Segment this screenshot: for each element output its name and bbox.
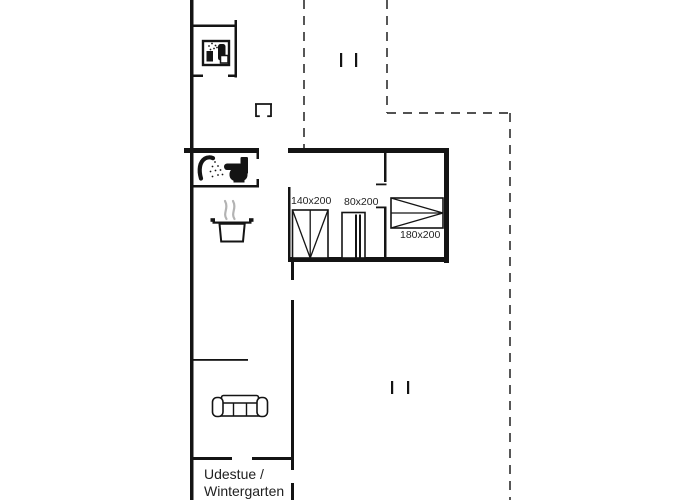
shower-arm <box>200 157 213 178</box>
fireplace-icon <box>255 104 272 117</box>
wall-segment <box>384 208 387 257</box>
wall-segment <box>444 148 449 263</box>
wall-segment <box>288 148 449 153</box>
toilet-bowl <box>230 168 248 181</box>
shower-spray-dots <box>210 161 224 177</box>
bed-size-label-180x200: 180x200 <box>400 230 440 241</box>
wall-segment <box>228 75 237 78</box>
floor-plan-linework <box>0 0 700 500</box>
sofa-icon <box>213 396 268 417</box>
floor-plan: 140x200 80x200 180x200 Udestue / Winterg… <box>0 0 700 500</box>
sofa-back <box>222 396 259 404</box>
terrace-dashed-boundary <box>304 0 510 500</box>
toilet-base <box>234 180 245 183</box>
kitchen-divider-line <box>192 359 248 361</box>
door-jamb <box>257 153 260 159</box>
wall-segment <box>192 457 232 460</box>
sofa-seat <box>221 403 261 417</box>
appliance-block <box>207 51 214 62</box>
tick-mark <box>355 53 357 67</box>
wall-segment <box>252 457 294 460</box>
wall-segment <box>190 185 259 188</box>
wall-segment <box>291 300 294 470</box>
door-jamb <box>376 184 387 186</box>
door-jamb <box>257 179 260 187</box>
wall-segment <box>190 25 237 28</box>
sofa-armrest <box>213 398 224 417</box>
wall-segment <box>190 75 203 78</box>
wall-segment <box>235 20 238 78</box>
tick-mark <box>340 53 342 67</box>
wall-segment <box>384 153 387 182</box>
cooking-pot-icon <box>211 201 254 242</box>
tick-mark <box>391 381 393 394</box>
steam-curl <box>225 201 227 219</box>
bed-outline <box>342 213 365 259</box>
appliance-detail <box>221 56 229 64</box>
room-label-udestue-line1: Udestue / <box>204 466 264 482</box>
shower-icon <box>200 157 224 178</box>
washing-machine-icon <box>203 41 229 65</box>
wall-segment <box>291 262 294 280</box>
tick-mark <box>407 381 409 394</box>
pot-handle <box>211 218 216 222</box>
bed-80x200 <box>342 213 365 259</box>
wall-segment <box>291 483 294 500</box>
bed-size-label-80x200: 80x200 <box>344 197 378 208</box>
room-label-udestue-line2: Wintergarten <box>204 483 284 499</box>
bed-180x200 <box>391 198 443 228</box>
bed-size-label-140x200: 140x200 <box>291 196 331 207</box>
steam-curl <box>233 201 235 219</box>
pot-body <box>220 224 245 242</box>
sofa-armrest <box>257 398 268 417</box>
pot-handle <box>249 218 254 222</box>
wall-segment <box>184 148 259 153</box>
toilet-icon <box>224 157 248 183</box>
bed-140x200 <box>293 210 329 258</box>
